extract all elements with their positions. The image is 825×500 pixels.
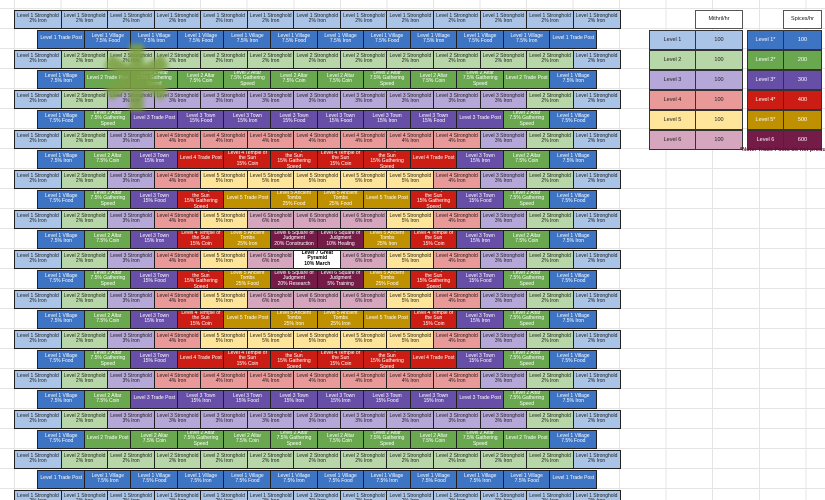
legend-row-label[interactable]: Level 4 — [649, 90, 696, 110]
map-cell[interactable]: Level 4 Trade Post — [177, 150, 225, 169]
map-cell[interactable]: Level 1 Village7.5% Food — [130, 470, 178, 489]
map-cell[interactable]: Level 3 Stronghold3% Iron — [200, 410, 248, 429]
map-cell-great-pyramid[interactable]: Level 7 Great Pyramid10% March — [293, 250, 341, 269]
map-cell[interactable]: Level 3 Stronghold3% Iron — [340, 90, 388, 109]
map-cell[interactable]: Level 1 Stronghold2% Iron — [386, 10, 434, 29]
map-cell[interactable]: Level 3 Town15% Iron — [223, 110, 271, 129]
map-cell[interactable]: Level 1 Stronghold2% Iron — [573, 370, 621, 389]
map-cell[interactable]: Level 1 Stronghold2% Iron — [573, 290, 621, 309]
map-cell[interactable]: Level 2 Altar7.5% Gathering Speed — [503, 110, 551, 129]
map-cell[interactable]: Level 3 Stronghold3% Iron — [480, 170, 528, 189]
map-cell[interactable]: Level 1 Stronghold2% Iron — [14, 250, 62, 269]
map-cell[interactable]: Level 5 Stronghold5% Iron — [200, 290, 248, 309]
map-cell[interactable]: Level 3 Town15% Iron — [177, 390, 225, 409]
map-cell[interactable]: Level 2 Altar7.5% Coin — [84, 150, 132, 169]
legend-row-value[interactable]: 100 — [783, 30, 822, 50]
map-cell[interactable]: Level 5 Ancient Tombs25% Food — [363, 270, 411, 289]
map-cell[interactable]: Level 2 Stronghold2% Iron — [200, 450, 248, 469]
legend-row-value[interactable]: 100 — [695, 50, 743, 70]
map-cell[interactable]: Level 5 Stronghold5% Iron — [247, 330, 295, 349]
map-cell[interactable]: Level 4 Stronghold4% Iron — [154, 210, 202, 229]
map-cell[interactable]: Level 5 Trade Post — [223, 190, 271, 209]
map-cell[interactable]: Level 2 Stronghold2% Iron — [247, 450, 295, 469]
map-cell[interactable]: Level 2 Altar7.5% Gathering Speed — [130, 70, 178, 89]
legend-row-value[interactable]: 100 — [695, 30, 743, 50]
map-cell[interactable]: Level 3 Stronghold3% Iron — [154, 90, 202, 109]
map-cell[interactable]: Level 4 Stronghold4% Iron — [200, 370, 248, 389]
map-cell[interactable]: Level 4 Temple of the Sun15% Gathering S… — [177, 190, 225, 209]
map-cell[interactable]: Level 1 Stronghold2% Iron — [433, 490, 481, 500]
map-cell[interactable]: Level 6 Stronghold6% Iron — [293, 290, 341, 309]
map-cell[interactable]: Level 5 Stronghold5% Iron — [340, 170, 388, 189]
map-cell[interactable]: Level 2 Trade Post — [503, 70, 551, 89]
map-cell[interactable]: Level 1 Village7.5% Food — [549, 190, 597, 209]
map-cell[interactable]: Level 2 Stronghold2% Iron — [61, 90, 109, 109]
map-cell[interactable]: Level 4 Temple of the Sun15% Gathering S… — [270, 150, 318, 169]
map-cell[interactable]: Level 3 Stronghold3% Iron — [107, 410, 155, 429]
map-cell[interactable]: Level 1 Stronghold2% Iron — [247, 490, 295, 500]
map-cell[interactable]: Level 1 Stronghold2% Iron — [480, 10, 528, 29]
map-cell[interactable]: Level 1 Village7.5% Iron — [177, 470, 225, 489]
map-cell[interactable]: Level 1 Stronghold2% Iron — [526, 10, 574, 29]
map-cell[interactable]: Level 3 Town15% Iron — [363, 110, 411, 129]
map-cell[interactable]: Level 2 Altar7.5% Gathering Speed — [503, 350, 551, 369]
map-cell[interactable]: Level 2 Stronghold2% Iron — [526, 50, 574, 69]
map-cell[interactable]: Level 4 Stronghold4% Iron — [200, 130, 248, 149]
map-cell[interactable]: Level 1 Village7.5% Iron — [270, 470, 318, 489]
map-cell[interactable]: Level 3 Stronghold3% Iron — [154, 410, 202, 429]
map-cell[interactable]: Level 1 Stronghold2% Iron — [14, 10, 62, 29]
map-cell[interactable]: Level 2 Trade Post — [84, 430, 132, 449]
map-cell[interactable]: Level 1 Village7.5% Iron — [503, 30, 551, 49]
map-cell[interactable]: Level 3 Town15% Iron — [130, 150, 178, 169]
map-cell[interactable]: Level 3 Stronghold3% Iron — [480, 130, 528, 149]
map-cell[interactable]: Level 5 Ancient Tombs25% Iron — [317, 310, 365, 329]
map-cell[interactable]: Level 2 Stronghold2% Iron — [526, 210, 574, 229]
map-cell[interactable]: Level 1 Village7.5% Iron — [37, 230, 85, 249]
map-cell[interactable]: Level 3 Town15% Iron — [270, 390, 318, 409]
map-cell[interactable]: Level 4 Temple of the Sun15% Gathering S… — [177, 270, 225, 289]
map-cell[interactable]: Level 2 Stronghold2% Iron — [154, 450, 202, 469]
map-cell[interactable]: Level 1 Stronghold2% Iron — [14, 450, 62, 469]
map-cell[interactable]: Level 4 Temple of the Sun15% Gathering S… — [410, 270, 458, 289]
map-cell[interactable]: Level 2 Stronghold2% Iron — [526, 130, 574, 149]
map-cell[interactable]: Level 4 Temple of the Sun15% Gathering S… — [410, 190, 458, 209]
map-cell[interactable]: Level 1 Stronghold2% Iron — [573, 210, 621, 229]
map-cell[interactable]: Level 5 Ancient Tombs25% Iron — [363, 230, 411, 249]
map-cell[interactable]: Level 5 Ancient Tombs25% Iron — [223, 230, 271, 249]
map-cell[interactable]: Level 2 Altar7.5% Gathering Speed — [84, 350, 132, 369]
map-cell[interactable]: Level 1 Stronghold2% Iron — [340, 10, 388, 29]
map-cell[interactable]: Level 1 Stronghold2% Iron — [573, 410, 621, 429]
map-cell[interactable]: Level 4 Temple of the Sun15% Coin — [223, 150, 271, 169]
map-cell[interactable]: Level 1 Village7.5% Iron — [130, 30, 178, 49]
map-cell[interactable]: Level 3 Stronghold3% Iron — [107, 170, 155, 189]
map-cell[interactable]: Level 1 Village7.5% Food — [549, 430, 597, 449]
legend-row-value[interactable]: 200 — [783, 50, 822, 70]
map-cell[interactable]: Level 3 Town15% Food — [270, 110, 318, 129]
map-cell[interactable]: Level 3 Town15% Iron — [456, 230, 504, 249]
map-cell[interactable]: Level 1 Stronghold2% Iron — [200, 490, 248, 500]
legend-row-label[interactable]: Level 1* — [747, 30, 784, 50]
map-cell[interactable]: Level 3 Stronghold3% Iron — [386, 90, 434, 109]
map-cell[interactable]: Level 1 Village7.5% Iron — [549, 230, 597, 249]
map-cell[interactable]: Level 3 Stronghold3% Iron — [107, 250, 155, 269]
map-cell[interactable]: Level 1 Village7.5% Iron — [363, 470, 411, 489]
map-cell[interactable]: Level 6 Stronghold6% Iron — [247, 250, 295, 269]
map-cell[interactable]: Level 3 Stronghold3% Iron — [480, 90, 528, 109]
map-cell[interactable]: Level 2 Altar7.5% Gathering Speed — [84, 190, 132, 209]
map-cell[interactable]: Level 3 Stronghold3% Iron — [107, 130, 155, 149]
map-cell[interactable]: Level 1 Village7.5% Food — [363, 30, 411, 49]
map-cell[interactable]: Level 1 Stronghold2% Iron — [247, 10, 295, 29]
map-cell[interactable]: Level 4 Stronghold4% Iron — [154, 250, 202, 269]
map-cell[interactable]: Level 2 Altar7.5% Gathering Speed — [84, 110, 132, 129]
map-cell[interactable]: Level 2 Stronghold2% Iron — [61, 450, 109, 469]
map-cell[interactable]: Level 2 Altar7.5% Coin — [503, 150, 551, 169]
map-cell[interactable]: Level 3 Town15% Iron — [317, 390, 365, 409]
map-cell[interactable]: Level 1 Village7.5% Food — [37, 110, 85, 129]
map-cell[interactable]: Level 2 Stronghold2% Iron — [107, 450, 155, 469]
map-cell[interactable]: Level 6 Stronghold6% Iron — [340, 250, 388, 269]
map-cell[interactable]: Level 2 Stronghold2% Iron — [61, 330, 109, 349]
map-cell[interactable]: Level 1 Stronghold2% Iron — [14, 410, 62, 429]
map-cell[interactable]: Level 2 Altar7.5% Coin — [84, 390, 132, 409]
map-cell[interactable]: Level 5 Ancient Tombs25% Iron — [270, 310, 318, 329]
map-cell[interactable]: Level 4 Trade Post — [410, 350, 458, 369]
map-cell[interactable]: Level 5 Stronghold5% Iron — [200, 170, 248, 189]
map-cell[interactable]: Level 1 Stronghold2% Iron — [526, 490, 574, 500]
map-cell[interactable]: Level 2 Stronghold2% Iron — [526, 170, 574, 189]
map-cell[interactable]: Level 1 Stronghold2% Iron — [200, 10, 248, 29]
legend-row-value[interactable]: 100 — [695, 70, 743, 90]
map-cell[interactable]: Level 4 Temple of the Sun15% Coin — [223, 350, 271, 369]
map-cell[interactable]: Level 1 Stronghold2% Iron — [154, 490, 202, 500]
map-cell[interactable]: Level 1 Village7.5% Iron — [37, 310, 85, 329]
map-cell[interactable]: Level 1 Stronghold2% Iron — [14, 210, 62, 229]
map-cell[interactable]: Level 1 Village7.5% Food — [37, 430, 85, 449]
map-cell[interactable]: Level 4 Stronghold4% Iron — [433, 290, 481, 309]
map-cell[interactable]: Level 1 Village7.5% Iron — [223, 30, 271, 49]
map-cell[interactable]: Level 3 Town15% Food — [130, 350, 178, 369]
map-cell[interactable]: Level 1 Village7.5% Iron — [317, 30, 365, 49]
map-cell[interactable]: Level 2 Stronghold2% Iron — [340, 50, 388, 69]
map-cell[interactable]: Level 2 Stronghold2% Iron — [526, 370, 574, 389]
map-cell[interactable]: Level 1 Stronghold2% Iron — [107, 490, 155, 500]
map-cell[interactable]: Level 1 Stronghold2% Iron — [14, 170, 62, 189]
map-cell[interactable]: Level 3 Town15% Iron — [456, 310, 504, 329]
map-cell[interactable]: Level 4 Temple of the Sun15% Coin — [317, 150, 365, 169]
legend-row-value[interactable]: 500 — [783, 110, 822, 130]
map-cell[interactable]: Level 4 Stronghold4% Iron — [247, 370, 295, 389]
map-cell[interactable]: Level 5 Trade Post — [363, 190, 411, 209]
map-cell[interactable]: Level 5 Stronghold5% Iron — [386, 210, 434, 229]
map-cell[interactable]: Level 1 Stronghold2% Iron — [14, 50, 62, 69]
map-cell[interactable]: Level 1 Stronghold2% Iron — [293, 490, 341, 500]
map-cell[interactable]: Level 4 Stronghold4% Iron — [247, 130, 295, 149]
map-cell[interactable]: Level 1 Village7.5% Food — [456, 30, 504, 49]
map-cell[interactable]: Level 1 Village7.5% Iron — [37, 390, 85, 409]
map-cell[interactable]: Level 1 Village7.5% Food — [37, 270, 85, 289]
map-cell[interactable]: Level 2 Stronghold2% Iron — [433, 450, 481, 469]
map-cell[interactable]: Level 1 Village7.5% Food — [270, 30, 318, 49]
map-cell[interactable]: Level 3 Stronghold3% Iron — [293, 90, 341, 109]
map-cell[interactable]: Level 1 Village7.5% Food — [549, 270, 597, 289]
map-cell[interactable]: Level 2 Altar7.5% Coin — [410, 430, 458, 449]
map-cell[interactable]: Level 4 Temple of the Sun15% Gathering S… — [363, 150, 411, 169]
legend-row-value[interactable]: 300 — [783, 70, 822, 90]
legend-row-label[interactable]: Level 3 — [649, 70, 696, 90]
map-cell[interactable]: Level 1 Stronghold2% Iron — [573, 490, 621, 500]
map-cell[interactable]: Level 3 Town15% Iron — [456, 150, 504, 169]
map-cell[interactable]: Level 3 Stronghold3% Iron — [433, 410, 481, 429]
map-cell[interactable]: Level 2 Stronghold2% Iron — [480, 50, 528, 69]
map-cell[interactable]: Level 3 Trade Post — [130, 390, 178, 409]
map-cell[interactable]: Level 1 Village7.5% Food — [317, 470, 365, 489]
map-cell[interactable]: Level 2 Stronghold2% Iron — [61, 170, 109, 189]
map-cell[interactable]: Level 3 Town15% Food — [317, 110, 365, 129]
map-cell[interactable]: Level 5 Stronghold5% Iron — [386, 250, 434, 269]
map-cell[interactable]: Level 3 Town15% Food — [456, 190, 504, 209]
map-cell[interactable]: Level 3 Stronghold3% Iron — [433, 90, 481, 109]
map-cell[interactable]: Level 6 Stronghold6% Iron — [247, 210, 295, 229]
map-cell[interactable]: Level 1 Stronghold2% Iron — [14, 330, 62, 349]
map-cell[interactable]: Level 4 Temple of the Sun15% Coin — [317, 350, 365, 369]
map-cell[interactable]: Level 3 Town15% Food — [177, 110, 225, 129]
map-cell[interactable]: Level 3 Stronghold3% Iron — [107, 90, 155, 109]
map-cell[interactable]: Level 1 Village7.5% Food — [223, 470, 271, 489]
map-cell[interactable]: Level 4 Trade Post — [410, 150, 458, 169]
legend-row-label[interactable]: Level 6 — [649, 130, 696, 150]
map-cell[interactable]: Level 2 Altar7.5% Gathering Speed — [363, 70, 411, 89]
map-cell[interactable]: Level 4 Stronghold4% Iron — [154, 130, 202, 149]
map-cell[interactable]: Level 5 Stronghold5% Iron — [293, 330, 341, 349]
map-cell[interactable]: Level 3 Town15% Food — [130, 190, 178, 209]
map-cell[interactable]: Level 2 Altar7.5% Gathering Speed — [503, 190, 551, 209]
map-cell[interactable]: Level 4 Stronghold4% Iron — [340, 130, 388, 149]
map-cell[interactable]: Level 4 Stronghold4% Iron — [433, 130, 481, 149]
legend-row-label[interactable]: Level 2 — [649, 50, 696, 70]
map-cell[interactable]: Level 4 Stronghold4% Iron — [293, 370, 341, 389]
map-cell[interactable]: Level 1 Village7.5% Food — [549, 350, 597, 369]
map-cell[interactable]: Level 1 Stronghold2% Iron — [386, 490, 434, 500]
map-cell[interactable]: Level 1 Trade Post — [37, 470, 85, 489]
map-cell[interactable]: Level 3 Town15% Food — [410, 110, 458, 129]
map-cell[interactable]: Level 2 Stronghold2% Iron — [386, 50, 434, 69]
map-cell[interactable]: Level 6 Square of Judgment20% Constructi… — [270, 230, 318, 249]
map-cell[interactable]: Level 3 Stronghold3% Iron — [293, 410, 341, 429]
map-cell[interactable]: Level 3 Town15% Food — [456, 350, 504, 369]
map-cell[interactable]: Level 6 Stronghold6% Iron — [340, 290, 388, 309]
map-cell[interactable]: Level 2 Altar7.5% Gathering Speed — [503, 390, 551, 409]
map-cell[interactable]: Level 2 Stronghold2% Iron — [526, 250, 574, 269]
map-cell[interactable]: Level 2 Stronghold2% Iron — [526, 330, 574, 349]
map-cell[interactable]: Level 3 Stronghold3% Iron — [247, 410, 295, 429]
map-cell[interactable]: Level 3 Stronghold3% Iron — [480, 370, 528, 389]
legend-row-label[interactable]: Level 5 — [649, 110, 696, 130]
map-cell[interactable]: Level 5 Trade Post — [223, 310, 271, 329]
map-cell[interactable]: Level 1 Stronghold2% Iron — [14, 490, 62, 500]
map-cell[interactable]: Level 6 Square of Judgment10% Healing — [317, 230, 365, 249]
map-cell[interactable]: Level 4 Temple of the Sun15% Coin — [177, 310, 225, 329]
map-cell[interactable]: Level 4 Stronghold4% Iron — [154, 370, 202, 389]
map-cell[interactable]: Level 4 Stronghold4% Iron — [293, 130, 341, 149]
map-cell[interactable]: Level 3 Trade Post — [456, 390, 504, 409]
map-cell[interactable]: Level 3 Stronghold3% Iron — [480, 250, 528, 269]
map-cell[interactable]: Level 1 Village7.5% Food — [37, 190, 85, 209]
map-cell[interactable]: Level 2 Stronghold2% Iron — [61, 410, 109, 429]
map-cell[interactable]: Level 2 Altar7.5% Coin — [84, 230, 132, 249]
map-cell[interactable]: Level 5 Stronghold5% Iron — [247, 170, 295, 189]
map-cell[interactable]: Level 2 Stronghold2% Iron — [386, 450, 434, 469]
map-cell[interactable]: Level 2 Altar7.5% Gathering Speed — [363, 430, 411, 449]
map-cell[interactable]: Level 4 Stronghold4% Iron — [386, 370, 434, 389]
map-cell[interactable]: Level 1 Village7.5% Iron — [37, 70, 85, 89]
legend-row-value[interactable]: 100 — [695, 110, 743, 130]
map-cell[interactable]: Level 3 Stronghold3% Iron — [340, 410, 388, 429]
map-cell[interactable]: Level 1 Stronghold2% Iron — [573, 450, 621, 469]
legend-row-value[interactable]: 100 — [695, 130, 743, 150]
map-cell[interactable]: Level 1 Stronghold2% Iron — [573, 130, 621, 149]
map-cell[interactable]: Level 1 Stronghold2% Iron — [433, 10, 481, 29]
map-cell[interactable]: Level 2 Stronghold2% Iron — [526, 90, 574, 109]
map-cell[interactable]: Level 2 Stronghold2% Iron — [526, 290, 574, 309]
map-cell[interactable]: Level 3 Town15% Iron — [130, 230, 178, 249]
map-cell[interactable]: Level 3 Stronghold3% Iron — [480, 330, 528, 349]
map-cell[interactable]: Level 2 Altar7.5% Gathering Speed — [503, 270, 551, 289]
map-cell[interactable]: Level 2 Altar7.5% Coin — [130, 430, 178, 449]
map-cell[interactable]: Level 1 Village7.5% Food — [84, 30, 132, 49]
map-cell[interactable]: Level 2 Stronghold2% Iron — [61, 50, 109, 69]
map-cell[interactable]: Level 4 Temple of the Sun15% Coin — [410, 230, 458, 249]
map-cell[interactable]: Level 2 Trade Post — [84, 70, 132, 89]
map-cell[interactable]: Level 4 Temple of the Sun15% Coin — [410, 310, 458, 329]
map-cell[interactable]: Level 4 Temple of the Sun15% Gathering S… — [363, 350, 411, 369]
legend-row-value[interactable]: 100 — [695, 90, 743, 110]
map-cell[interactable]: Level 2 Altar7.5% Gathering Speed — [503, 310, 551, 329]
map-cell[interactable]: Level 1 Stronghold2% Iron — [573, 10, 621, 29]
map-cell[interactable]: Level 1 Village7.5% Food — [503, 470, 551, 489]
map-cell[interactable]: Level 3 Town15% Iron — [410, 390, 458, 409]
map-cell[interactable]: Level 1 Stronghold2% Iron — [573, 170, 621, 189]
map-cell[interactable]: Level 2 Altar7.5% Coin — [177, 70, 225, 89]
map-cell[interactable]: Level 3 Town15% Food — [456, 270, 504, 289]
map-cell[interactable]: Level 1 Stronghold2% Iron — [107, 10, 155, 29]
map-cell[interactable]: Level 1 Trade Post — [37, 30, 85, 49]
legend-row-value[interactable]: 400 — [783, 90, 822, 110]
map-cell[interactable]: Level 5 Stronghold5% Iron — [340, 330, 388, 349]
map-cell[interactable]: Level 2 Stronghold2% Iron — [61, 290, 109, 309]
legend-row-label[interactable]: Level 1 — [649, 30, 696, 50]
map-cell[interactable]: Level 4 Stronghold4% Iron — [433, 170, 481, 189]
map-cell[interactable]: Level 2 Altar7.5% Coin — [317, 430, 365, 449]
map-cell[interactable]: Level 1 Stronghold2% Iron — [573, 90, 621, 109]
map-cell[interactable]: Level 2 Stronghold2% Iron — [61, 250, 109, 269]
map-cell[interactable]: Level 2 Stronghold2% Iron — [340, 450, 388, 469]
map-cell[interactable]: Level 1 Stronghold2% Iron — [293, 10, 341, 29]
map-cell[interactable]: Level 1 Stronghold2% Iron — [14, 90, 62, 109]
legend-row-label[interactable]: Level 5* — [747, 110, 784, 130]
map-cell[interactable]: Level 3 Town15% Food — [223, 390, 271, 409]
map-cell[interactable]: Level 3 Trade Post — [130, 110, 178, 129]
map-cell[interactable]: Level 6 Square of Judgment5% Training — [317, 270, 365, 289]
map-cell[interactable]: Level 1 Village7.5% Iron — [84, 470, 132, 489]
map-cell[interactable]: Level 4 Stronghold4% Iron — [340, 370, 388, 389]
map-cell[interactable]: Level 1 Village7.5% Iron — [456, 470, 504, 489]
map-cell[interactable]: Level 3 Town15% Food — [363, 390, 411, 409]
map-cell[interactable]: Level 2 Stronghold2% Iron — [154, 50, 202, 69]
map-cell[interactable]: Level 2 Altar7.5% Gathering Speed — [456, 430, 504, 449]
map-cell[interactable]: Level 1 Stronghold2% Iron — [14, 370, 62, 389]
map-cell[interactable]: Level 3 Trade Post — [456, 110, 504, 129]
map-cell[interactable]: Level 2 Altar7.5% Gathering Speed — [223, 70, 271, 89]
map-cell[interactable]: Level 3 Stronghold3% Iron — [386, 410, 434, 429]
map-cell[interactable]: Level 5 Trade Post — [363, 310, 411, 329]
map-cell[interactable]: Level 3 Stronghold3% Iron — [107, 370, 155, 389]
map-cell[interactable]: Level 3 Stronghold3% Iron — [200, 90, 248, 109]
map-cell[interactable]: Level 5 Ancient Tombs25% Food — [270, 190, 318, 209]
map-cell[interactable]: Level 2 Altar7.5% Gathering Speed — [270, 430, 318, 449]
map-cell[interactable]: Level 2 Altar7.5% Coin — [410, 70, 458, 89]
map-cell[interactable]: Level 1 Stronghold2% Iron — [14, 130, 62, 149]
map-cell[interactable]: Level 4 Stronghold4% Iron — [154, 290, 202, 309]
map-cell[interactable]: Level 5 Stronghold5% Iron — [200, 330, 248, 349]
map-cell[interactable]: Level 1 Village7.5% Iron — [549, 150, 597, 169]
map-cell[interactable]: Level 5 Stronghold5% Iron — [200, 210, 248, 229]
map-cell[interactable]: Level 2 Stronghold2% Iron — [61, 210, 109, 229]
map-cell[interactable]: Level 2 Stronghold2% Iron — [293, 450, 341, 469]
map-cell[interactable]: Level 1 Stronghold2% Iron — [573, 50, 621, 69]
map-cell[interactable]: Level 5 Stronghold5% Iron — [386, 290, 434, 309]
map-cell[interactable]: Level 3 Stronghold3% Iron — [247, 90, 295, 109]
map-cell[interactable]: Level 3 Stronghold3% Iron — [107, 210, 155, 229]
map-cell[interactable]: Level 6 Stronghold6% Iron — [293, 210, 341, 229]
map-cell[interactable]: Level 1 Village7.5% Food — [549, 110, 597, 129]
map-cell[interactable]: Level 4 Stronghold4% Iron — [433, 210, 481, 229]
map-cell[interactable]: Level 1 Trade Post — [549, 470, 597, 489]
map-cell[interactable]: Level 6 Stronghold6% Iron — [247, 290, 295, 309]
map-cell[interactable]: Level 2 Stronghold2% Iron — [61, 370, 109, 389]
map-cell[interactable]: Level 2 Altar7.5% Gathering Speed — [177, 430, 225, 449]
map-cell[interactable]: Level 2 Altar7.5% Coin — [270, 70, 318, 89]
map-cell[interactable]: Level 4 Stronghold4% Iron — [386, 130, 434, 149]
map-cell[interactable]: Level 1 Trade Post — [549, 30, 597, 49]
map-cell[interactable]: Level 2 Stronghold2% Iron — [107, 50, 155, 69]
map-cell[interactable]: Level 1 Village7.5% Food — [410, 470, 458, 489]
map-cell[interactable]: Level 2 Trade Post — [503, 430, 551, 449]
legend-row-label[interactable]: Level 2* — [747, 50, 784, 70]
map-cell[interactable]: Level 2 Altar7.5% Coin — [503, 230, 551, 249]
map-cell[interactable]: Level 4 Trade Post — [177, 350, 225, 369]
map-cell[interactable]: Level 4 Stronghold4% Iron — [154, 330, 202, 349]
map-cell[interactable]: Level 1 Stronghold2% Iron — [573, 250, 621, 269]
legend-row-label[interactable]: Level 4* — [747, 90, 784, 110]
map-cell[interactable]: Level 1 Village7.5% Food — [177, 30, 225, 49]
map-cell[interactable]: Level 1 Stronghold2% Iron — [340, 490, 388, 500]
map-cell[interactable]: Level 1 Village7.5% Iron — [549, 310, 597, 329]
map-cell[interactable]: Level 3 Stronghold3% Iron — [107, 290, 155, 309]
map-cell[interactable]: Level 1 Stronghold2% Iron — [14, 290, 62, 309]
map-cell[interactable]: Level 5 Stronghold5% Iron — [386, 330, 434, 349]
legend-row-label[interactable]: Level 3* — [747, 70, 784, 90]
map-cell[interactable]: Level 1 Stronghold2% Iron — [61, 490, 109, 500]
map-cell[interactable]: Level 3 Town15% Food — [130, 270, 178, 289]
map-cell[interactable]: Level 2 Stronghold2% Iron — [480, 450, 528, 469]
map-cell[interactable]: Level 5 Ancient Tombs25% Food — [317, 190, 365, 209]
map-cell[interactable]: Level 2 Stronghold2% Iron — [61, 130, 109, 149]
map-cell[interactable]: Level 1 Village7.5% Iron — [549, 70, 597, 89]
map-cell[interactable]: Level 1 Village7.5% Food — [37, 350, 85, 369]
